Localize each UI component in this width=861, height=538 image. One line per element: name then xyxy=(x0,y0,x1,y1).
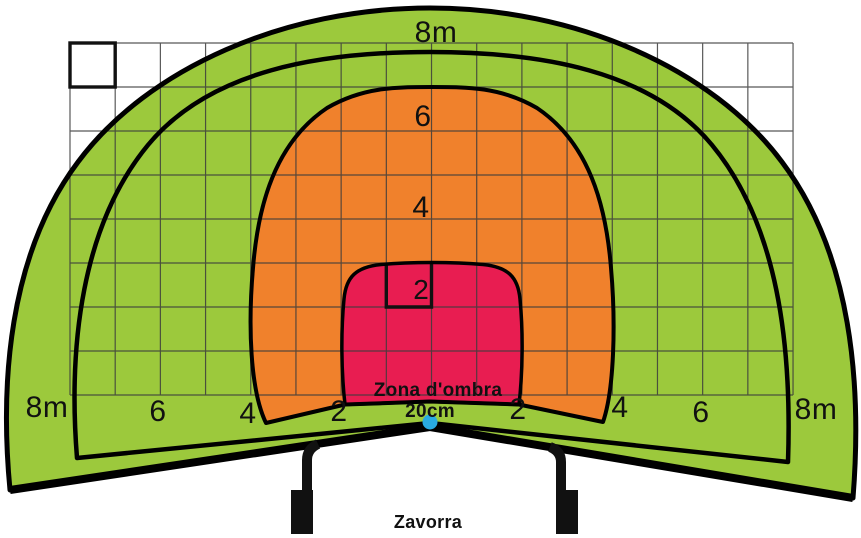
baseline-label-right-2: 2 xyxy=(509,393,526,426)
baseline-label-right-6: 6 xyxy=(692,396,709,429)
baseline-label-left-8m: 8m xyxy=(26,391,69,424)
shade-coverage-diagram: 8m 6 4 2 Zona d'ombra 20cm 8m 6 4 2 2 4 … xyxy=(0,0,861,538)
reference-square-1m xyxy=(70,43,115,87)
label-ring-6: 6 xyxy=(414,100,431,133)
baseline-label-left-4: 4 xyxy=(239,397,256,430)
baseline-label-right-4: 4 xyxy=(611,391,628,424)
label-center-height-20cm: 20cm xyxy=(405,401,455,422)
label-ring-4: 4 xyxy=(412,191,429,224)
label-ring-2: 2 xyxy=(413,274,429,305)
baseline-label-left-2: 2 xyxy=(330,395,347,428)
label-ballast: Zavorra xyxy=(394,512,463,532)
diagram-canvas: 8m 6 4 2 Zona d'ombra 20cm 8m 6 4 2 2 4 … xyxy=(0,0,861,538)
baseline-label-left-6: 6 xyxy=(149,395,166,428)
stand-right-ballast-foot xyxy=(556,490,578,534)
stand-left-ballast-foot xyxy=(291,490,313,534)
baseline-label-right-8m: 8m xyxy=(795,393,838,426)
label-shadow-zone: Zona d'ombra xyxy=(374,380,503,401)
label-top-8m: 8m xyxy=(415,16,458,49)
